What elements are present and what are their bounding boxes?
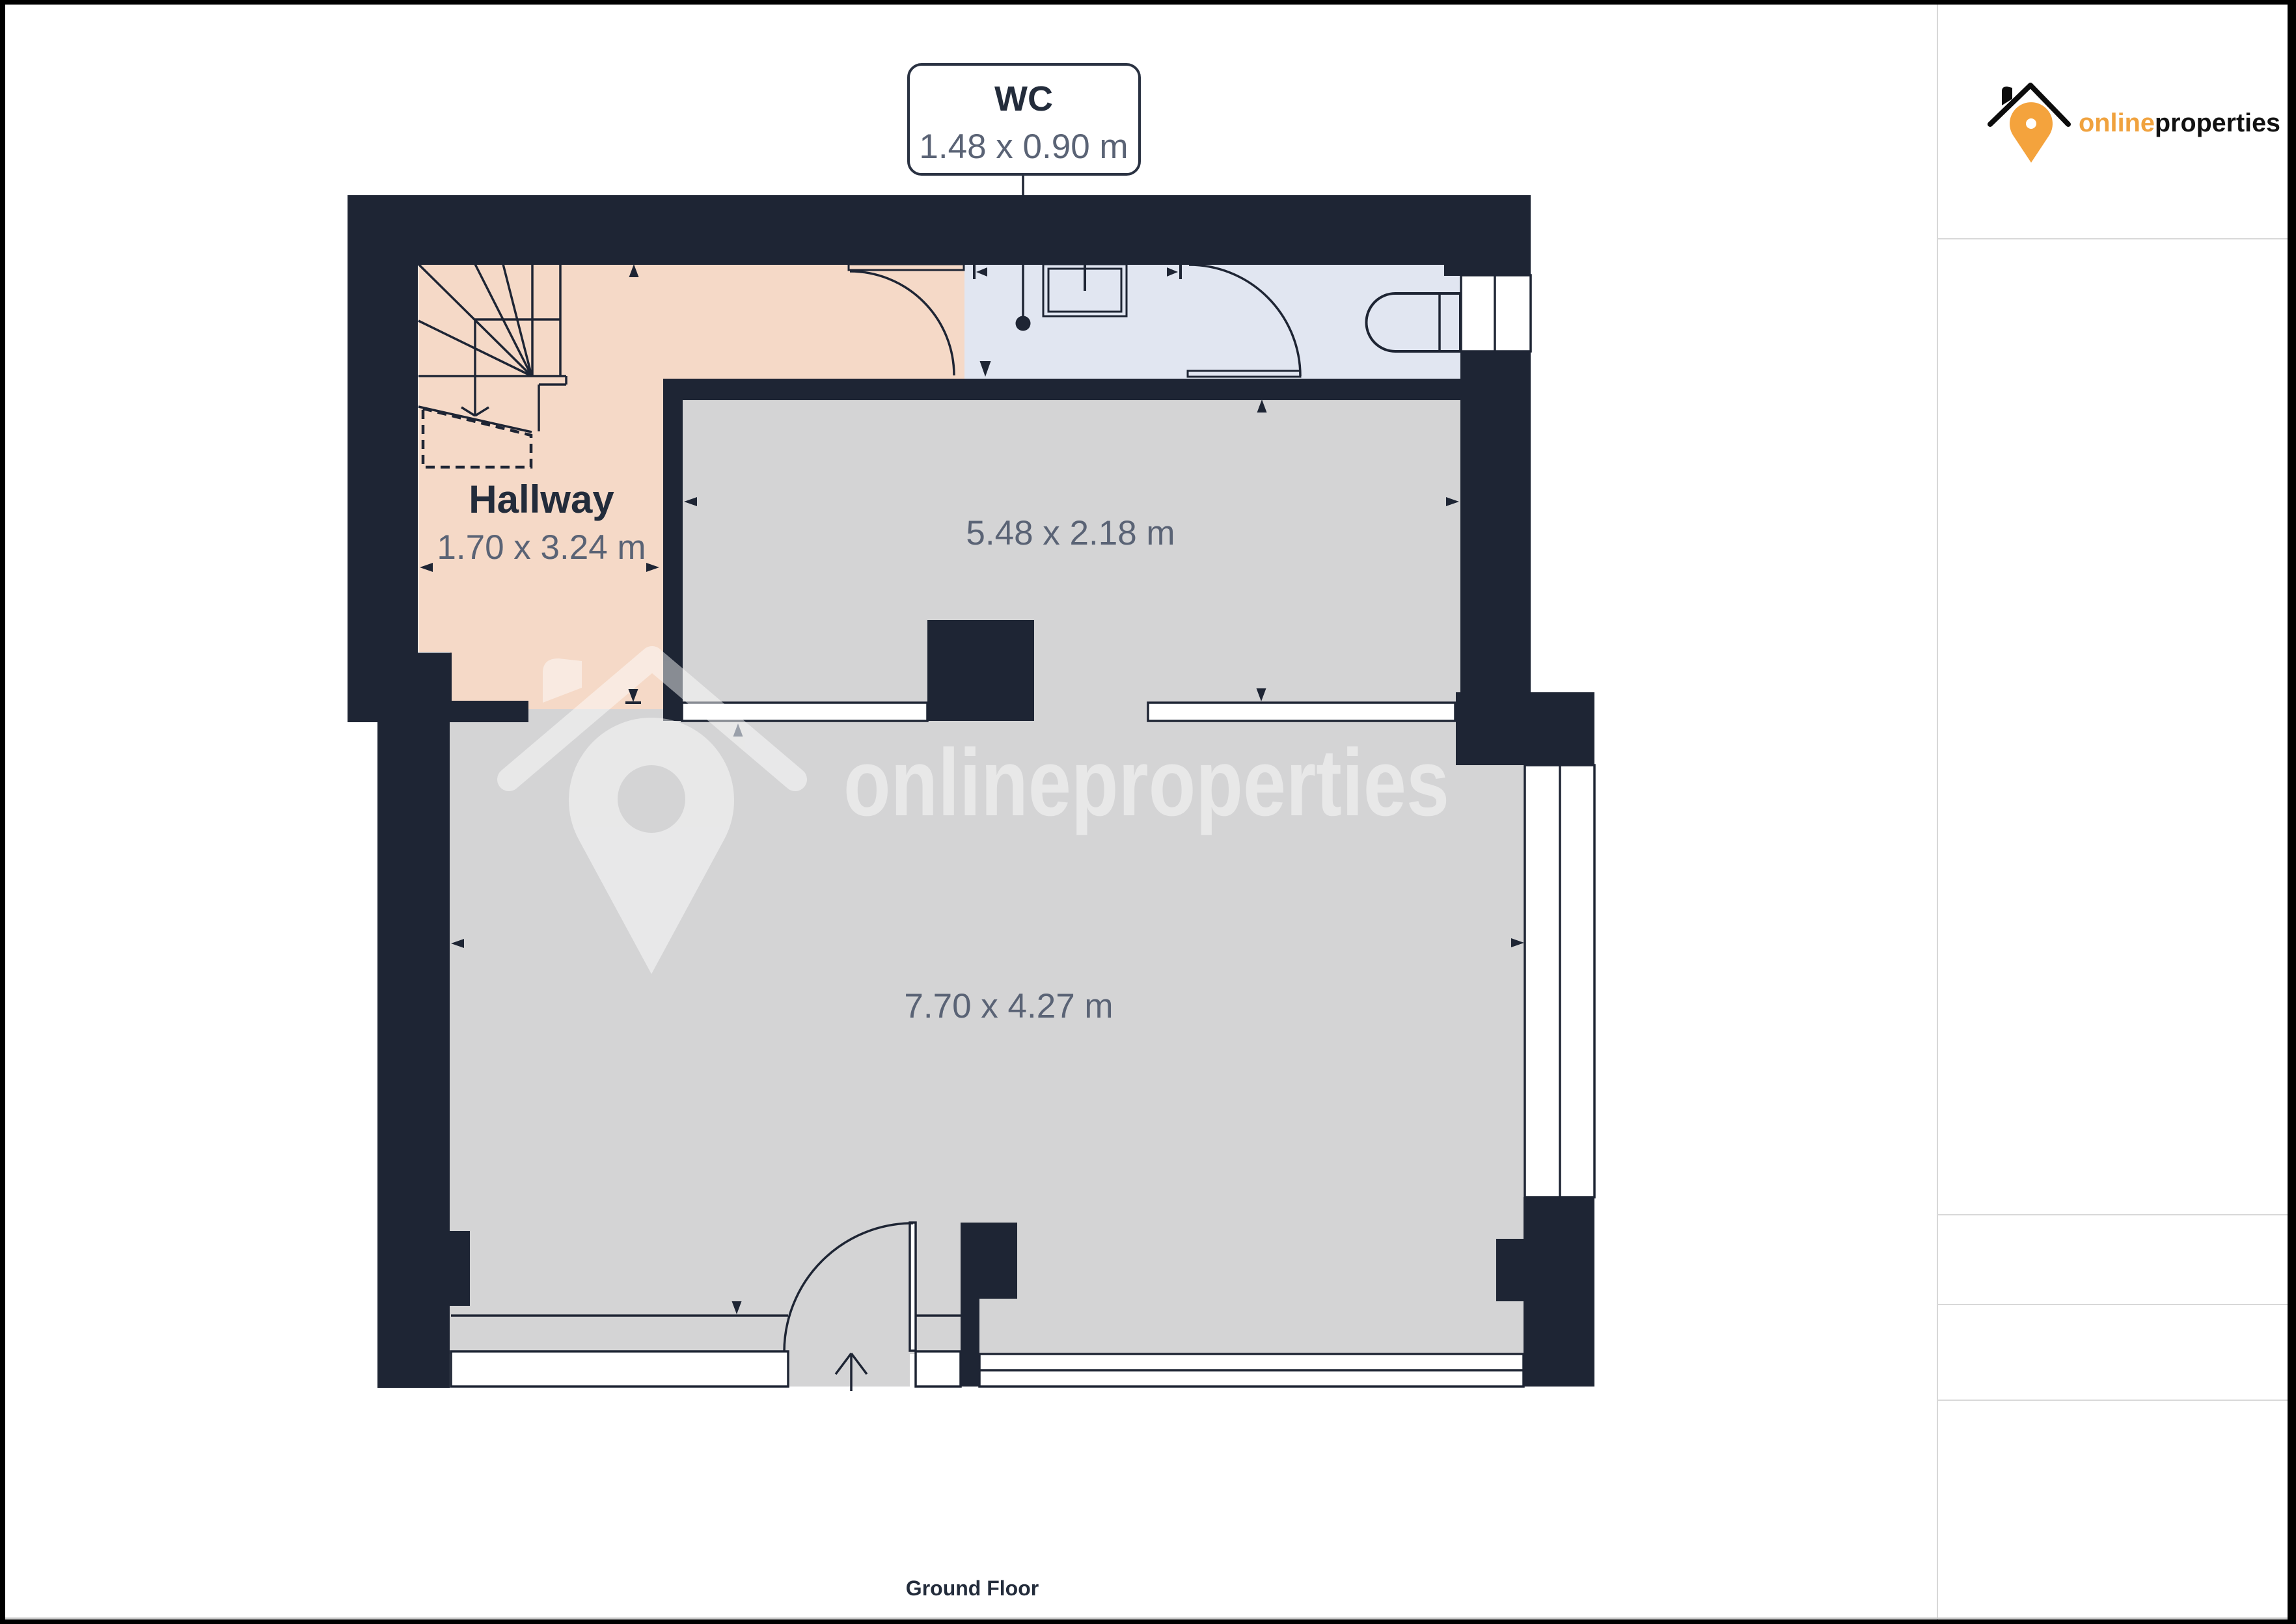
svg-text:onlineproperties: onlineproperties [843,729,1449,835]
svg-text:Ground Floor: Ground Floor [906,1577,1039,1600]
svg-text:properties: properties [2155,109,2280,137]
svg-text:7.70 x 4.27 m: 7.70 x 4.27 m [904,987,1113,1025]
svg-text:WC: WC [994,79,1053,118]
svg-text:5.48 x 2.18 m: 5.48 x 2.18 m [966,514,1175,552]
svg-text:online: online [2079,109,2155,137]
svg-text:Hallway: Hallway [469,478,614,521]
svg-text:1.70 x 3.24 m: 1.70 x 3.24 m [437,528,646,567]
svg-text:1.48 x 0.90 m: 1.48 x 0.90 m [919,128,1128,166]
